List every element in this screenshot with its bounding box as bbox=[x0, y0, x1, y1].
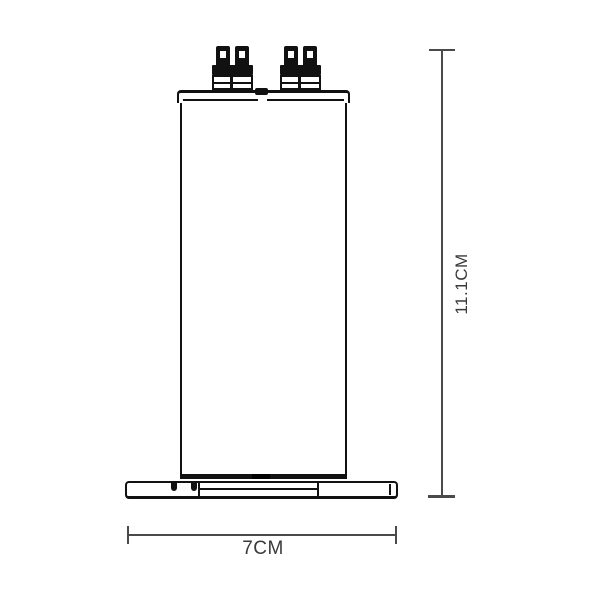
width-dimension-tick-left bbox=[127, 526, 129, 544]
terminal-left bbox=[212, 46, 253, 90]
base-rivet-left bbox=[171, 483, 177, 491]
terminal-cap bbox=[280, 65, 321, 75]
prong-hole bbox=[220, 51, 226, 58]
prong-hole bbox=[239, 51, 245, 58]
width-dimension-line bbox=[128, 534, 397, 536]
lid-bottom-line-left bbox=[183, 99, 258, 101]
base-divider-right bbox=[317, 483, 319, 496]
height-dimension-tick-bottom bbox=[428, 495, 455, 498]
technical-drawing-page: { "figure": { "kind": "technical-drawing… bbox=[0, 0, 600, 600]
capacitor-body bbox=[180, 103, 347, 479]
terminal-base-seam bbox=[214, 82, 251, 84]
body-bottom-seam bbox=[252, 474, 270, 479]
width-dimension-tick-right bbox=[395, 526, 397, 544]
terminal-base-seam bbox=[282, 82, 319, 84]
mounting-base-plate bbox=[125, 481, 398, 499]
height-dimension-tick-top bbox=[429, 49, 455, 51]
base-inner-line bbox=[199, 488, 318, 490]
height-dimension-label: 11.1CM bbox=[452, 253, 472, 314]
base-right-end-mark bbox=[389, 484, 391, 495]
prong-hole bbox=[307, 51, 313, 58]
width-dimension-label: 7CM bbox=[233, 538, 293, 560]
terminal-right bbox=[280, 46, 321, 90]
lid-bottom-line-right bbox=[267, 99, 344, 101]
lid-center-seam bbox=[255, 88, 268, 95]
terminal-cap bbox=[212, 65, 253, 75]
base-rivet-right bbox=[191, 483, 197, 491]
height-dimension-line bbox=[441, 50, 443, 497]
prong-hole bbox=[288, 51, 294, 58]
base-divider-left bbox=[198, 483, 200, 496]
